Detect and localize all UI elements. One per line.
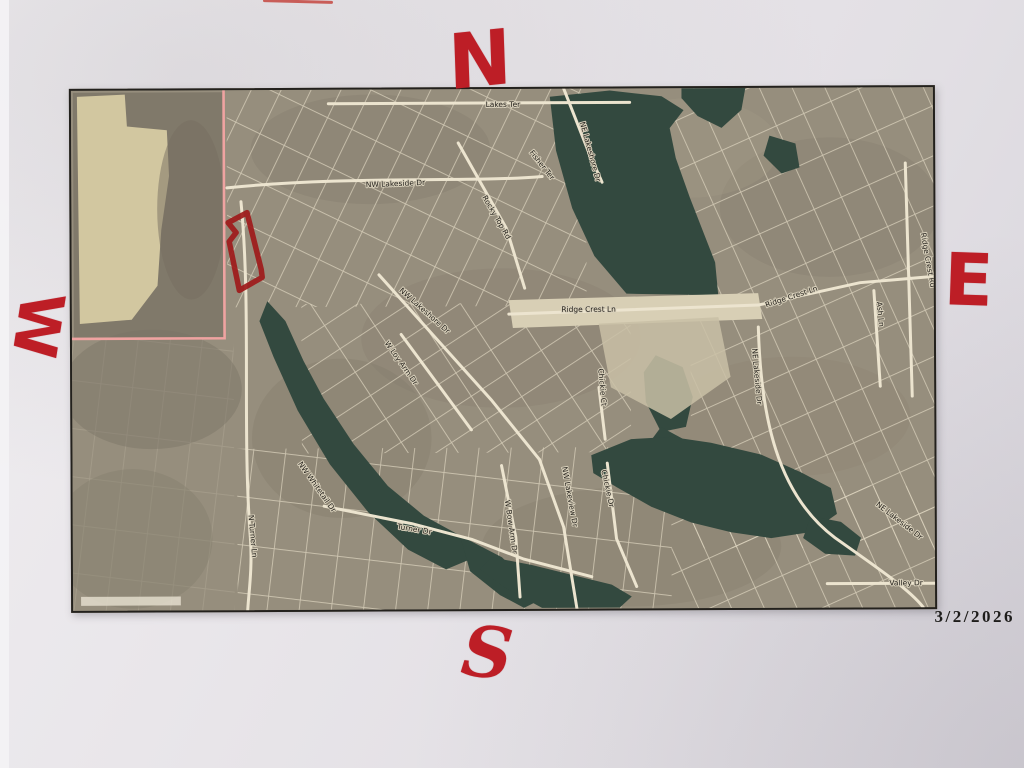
compass-north-marker: N <box>447 19 513 102</box>
date-stamp: 3/2/2026 <box>900 607 1015 627</box>
street-label: Valley Dr <box>889 578 923 587</box>
aerial-map: Lakes Ter NW Lakeside Dr Rocky Top Rd NE… <box>69 85 937 613</box>
photographed-map-page: Lakes Ter NW Lakeside Dr Rocky Top Rd NE… <box>0 0 1024 768</box>
compass-west-marker: W <box>2 292 73 361</box>
street-label: Ridge Crest Ln <box>561 305 616 314</box>
aerial-map-canvas: Lakes Ter NW Lakeside Dr Rocky Top Rd NE… <box>71 87 935 611</box>
compass-south-marker: S <box>458 616 516 691</box>
stray-red-mark <box>263 0 333 4</box>
paper-edge <box>0 0 9 768</box>
attribution-strip <box>81 596 181 605</box>
compass-east-marker: E <box>943 243 995 317</box>
